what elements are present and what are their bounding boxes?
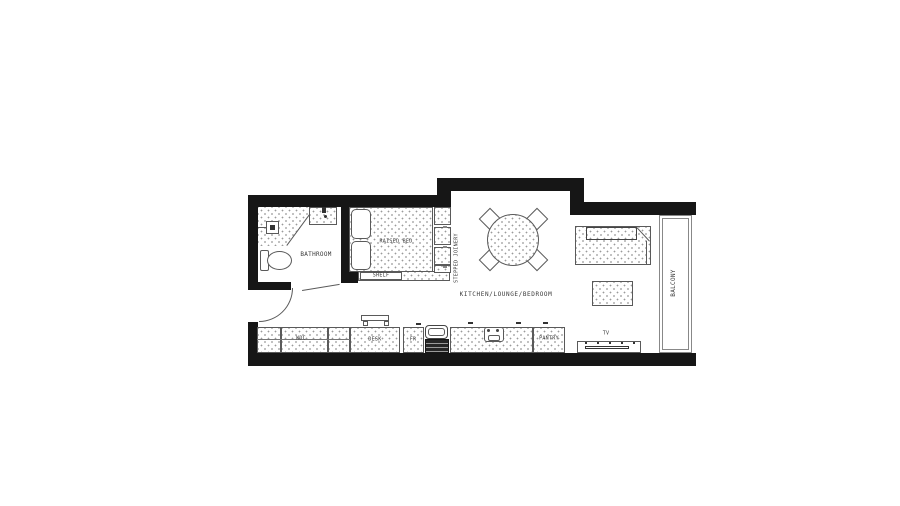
sink-tap-icon xyxy=(487,329,490,332)
balcony-label: BALCONY xyxy=(671,269,677,296)
kitchen-cabinet xyxy=(257,327,281,353)
sink-basin-icon xyxy=(488,335,500,341)
wall-left-upper xyxy=(248,195,258,290)
sink-tap-icon xyxy=(496,329,499,332)
ottoman xyxy=(592,281,633,306)
bathroom-slider-door xyxy=(302,284,340,291)
dining-table xyxy=(487,214,539,266)
joinery-step-mark xyxy=(443,226,447,228)
joinery-step-mark xyxy=(443,246,447,248)
pillow xyxy=(351,241,371,270)
shower-head-core-icon xyxy=(270,225,275,230)
wdc-label: WDC xyxy=(296,337,306,342)
floor-plan: BATHROOM RAISED BED SHELF STEPPED JOINER… xyxy=(0,0,900,506)
sofa-arm-line xyxy=(646,241,647,264)
wall-bottom xyxy=(248,353,696,366)
entry-door-swing-arc xyxy=(259,288,293,322)
wall-top-right xyxy=(584,202,696,215)
tv-unit-foot xyxy=(609,342,611,344)
kitchen-cabinet xyxy=(328,327,350,353)
tv-label: TV xyxy=(603,332,610,337)
tv-unit-foot xyxy=(597,342,599,344)
raised-bed-label: RAISED BED xyxy=(379,240,412,245)
joinery-cabinet xyxy=(434,207,451,225)
wall-step-right xyxy=(570,178,584,215)
cooktop-inner-icon xyxy=(428,328,445,336)
stepped-joinery-label: STEPPED JOINERY xyxy=(455,233,460,283)
pillow xyxy=(351,209,371,239)
tv-unit-foot xyxy=(585,342,587,344)
tv-unit-foot xyxy=(621,342,623,344)
tv-unit-foot xyxy=(633,342,635,344)
joinery-cabinet xyxy=(434,227,451,245)
oven-icon xyxy=(425,339,449,353)
sofa-back-cushion xyxy=(586,227,637,240)
wall-bathroom-east xyxy=(341,203,349,273)
vanity-tap-icon xyxy=(322,207,326,213)
tv-screen-icon xyxy=(585,346,629,349)
vanity-drain-icon xyxy=(324,215,327,218)
fridge-label: FR xyxy=(410,338,417,343)
bench-handle xyxy=(516,322,521,324)
main-room-label: KITCHEN/LOUNGE/BEDROOM xyxy=(460,292,553,298)
wall-top-left xyxy=(248,195,451,207)
shelf-label: SHELF xyxy=(373,274,390,279)
bench-handle xyxy=(543,322,548,324)
bench-handle xyxy=(468,322,473,324)
joinery-cabinet xyxy=(434,247,451,265)
bathroom-label: BATHROOM xyxy=(300,252,331,258)
wall-top-upper xyxy=(437,178,584,191)
desk-stool-leg xyxy=(363,321,368,326)
joinery-step-mark xyxy=(443,266,447,268)
desk-stool-leg xyxy=(384,321,389,326)
toilet-bowl-icon xyxy=(267,251,292,270)
pantry-label: PANTRY xyxy=(539,337,559,342)
wall-bathroom-east-foot xyxy=(341,271,358,283)
shower-arm-line xyxy=(258,227,266,228)
fridge-handle xyxy=(416,323,421,325)
desk-label: DESK xyxy=(368,338,381,343)
